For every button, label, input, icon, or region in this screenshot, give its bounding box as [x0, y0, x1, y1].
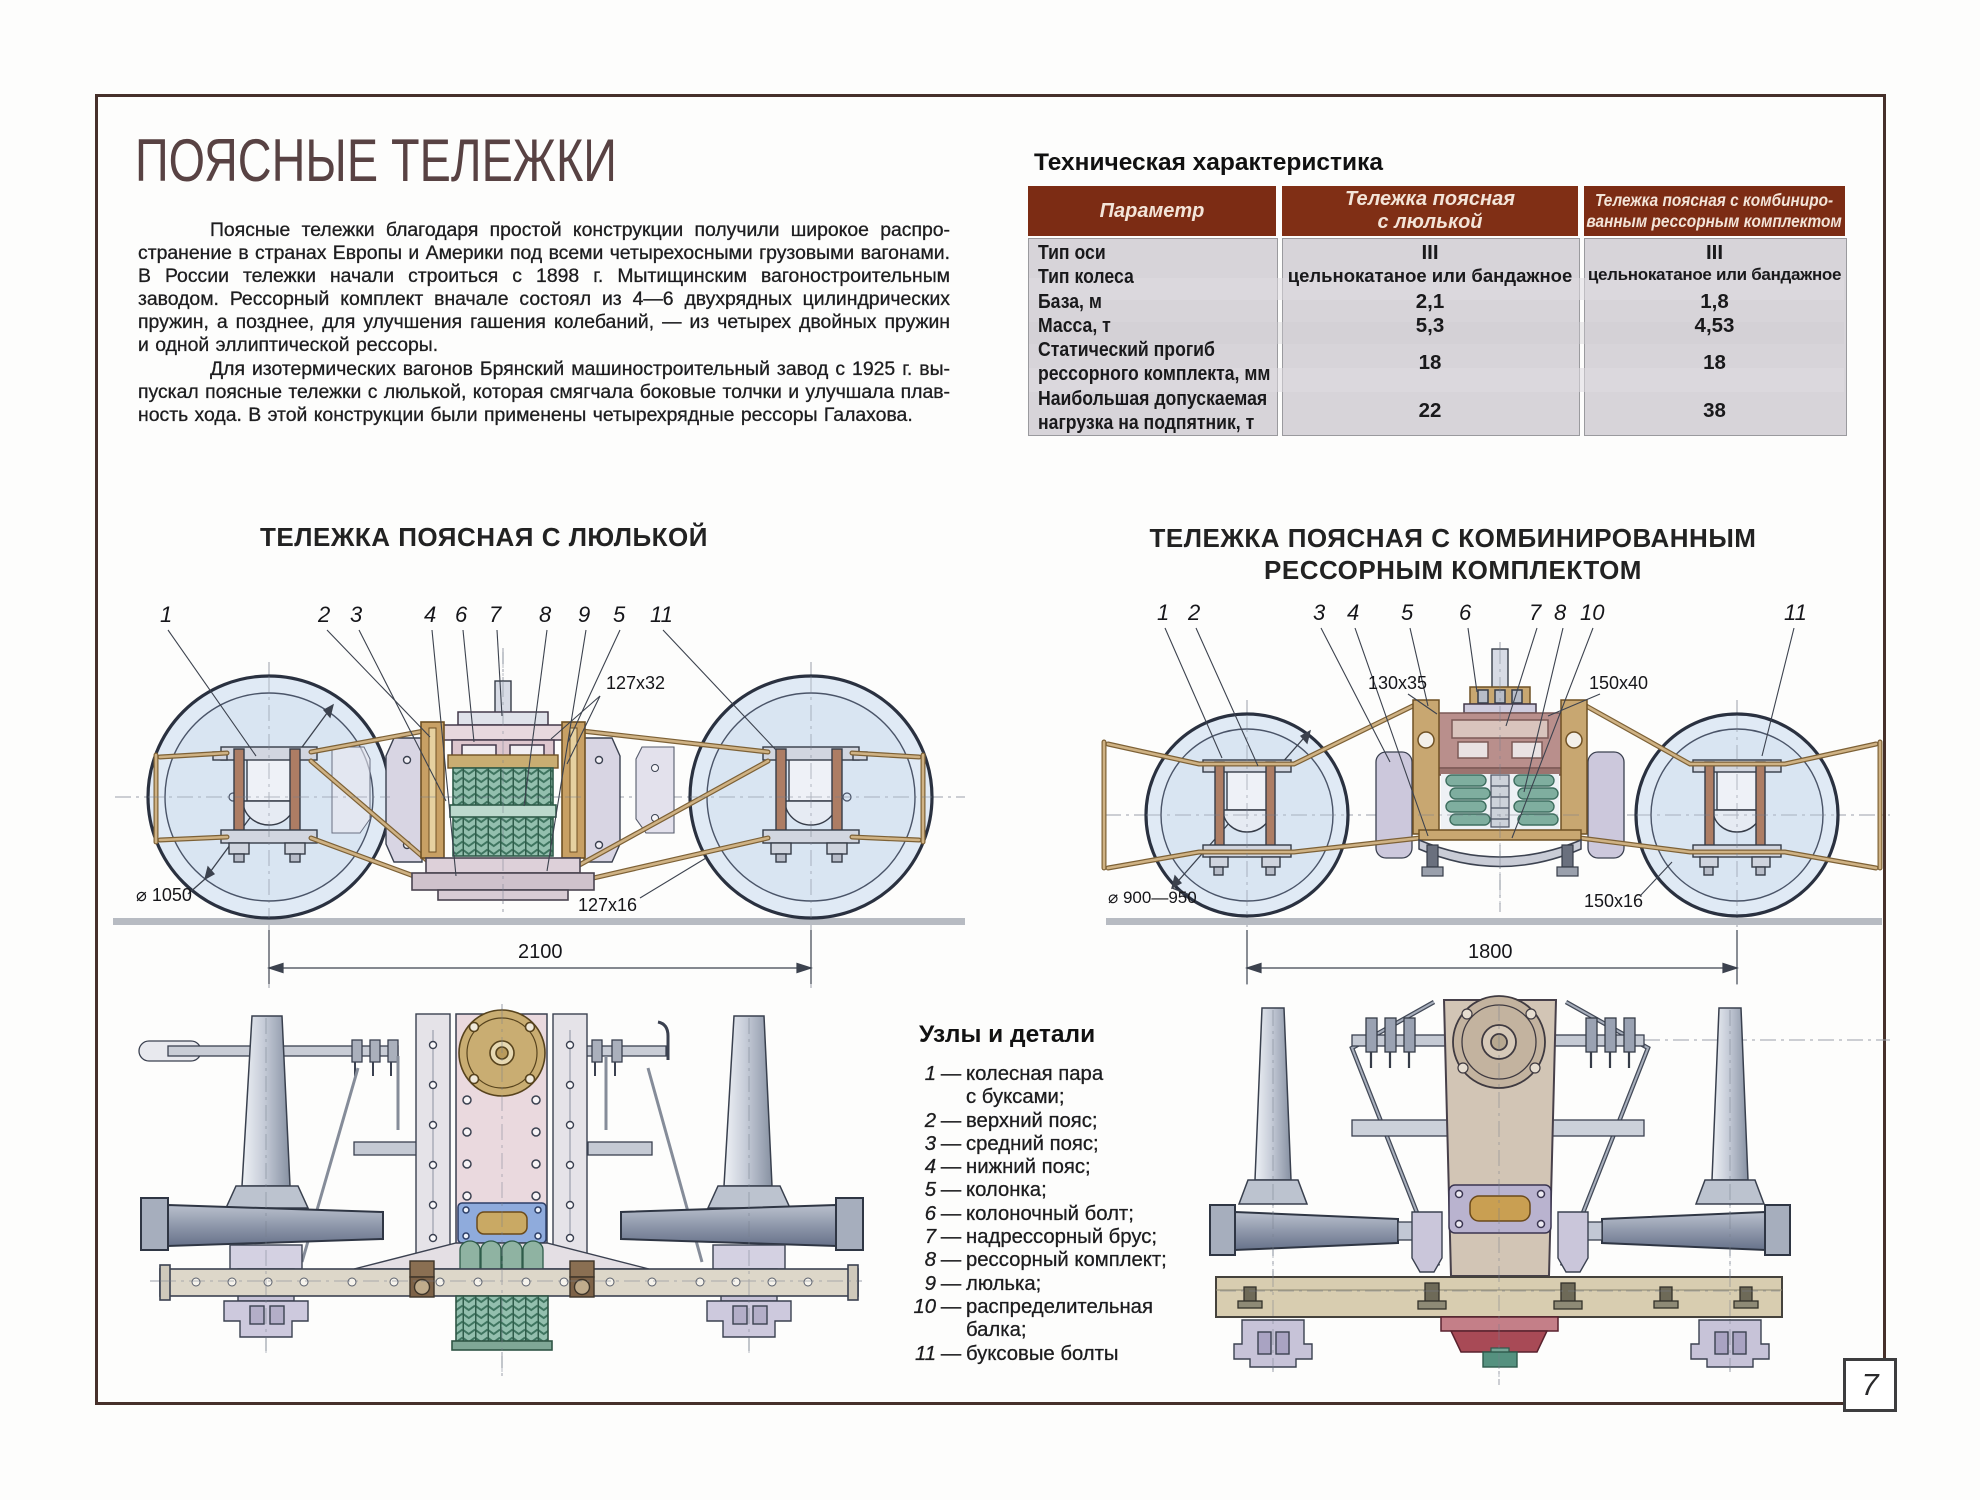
svg-text:4: 4: [424, 602, 436, 627]
svg-text:150x40: 150x40: [1589, 673, 1648, 693]
svg-text:3: 3: [350, 602, 363, 627]
svg-text:5: 5: [613, 602, 626, 627]
svg-text:4: 4: [1347, 600, 1359, 625]
svg-text:2: 2: [317, 602, 330, 627]
svg-text:11: 11: [650, 602, 673, 627]
svg-text:2: 2: [1187, 600, 1200, 625]
svg-text:6: 6: [1459, 600, 1472, 625]
svg-text:1: 1: [160, 602, 172, 627]
svg-text:7: 7: [1529, 600, 1542, 625]
svg-text:6: 6: [455, 602, 468, 627]
svg-text:2100: 2100: [518, 941, 563, 963]
svg-text:8: 8: [1554, 600, 1567, 625]
svg-text:1: 1: [1157, 600, 1169, 625]
svg-text:9: 9: [578, 602, 590, 627]
svg-text:127x32: 127x32: [606, 673, 665, 693]
svg-text:127x16: 127x16: [578, 895, 637, 915]
svg-text:5: 5: [1401, 600, 1414, 625]
svg-text:⌀ 1050: ⌀ 1050: [136, 885, 192, 905]
svg-text:11: 11: [1784, 600, 1807, 625]
svg-text:130x35: 130x35: [1368, 673, 1427, 693]
svg-text:8: 8: [539, 602, 552, 627]
svg-text:10: 10: [1580, 600, 1605, 625]
svg-text:3: 3: [1313, 600, 1326, 625]
svg-text:⌀ 900—950: ⌀ 900—950: [1108, 888, 1197, 907]
svg-text:7: 7: [489, 602, 502, 627]
svg-text:150x16: 150x16: [1584, 891, 1643, 911]
svg-text:1800: 1800: [1468, 941, 1513, 963]
